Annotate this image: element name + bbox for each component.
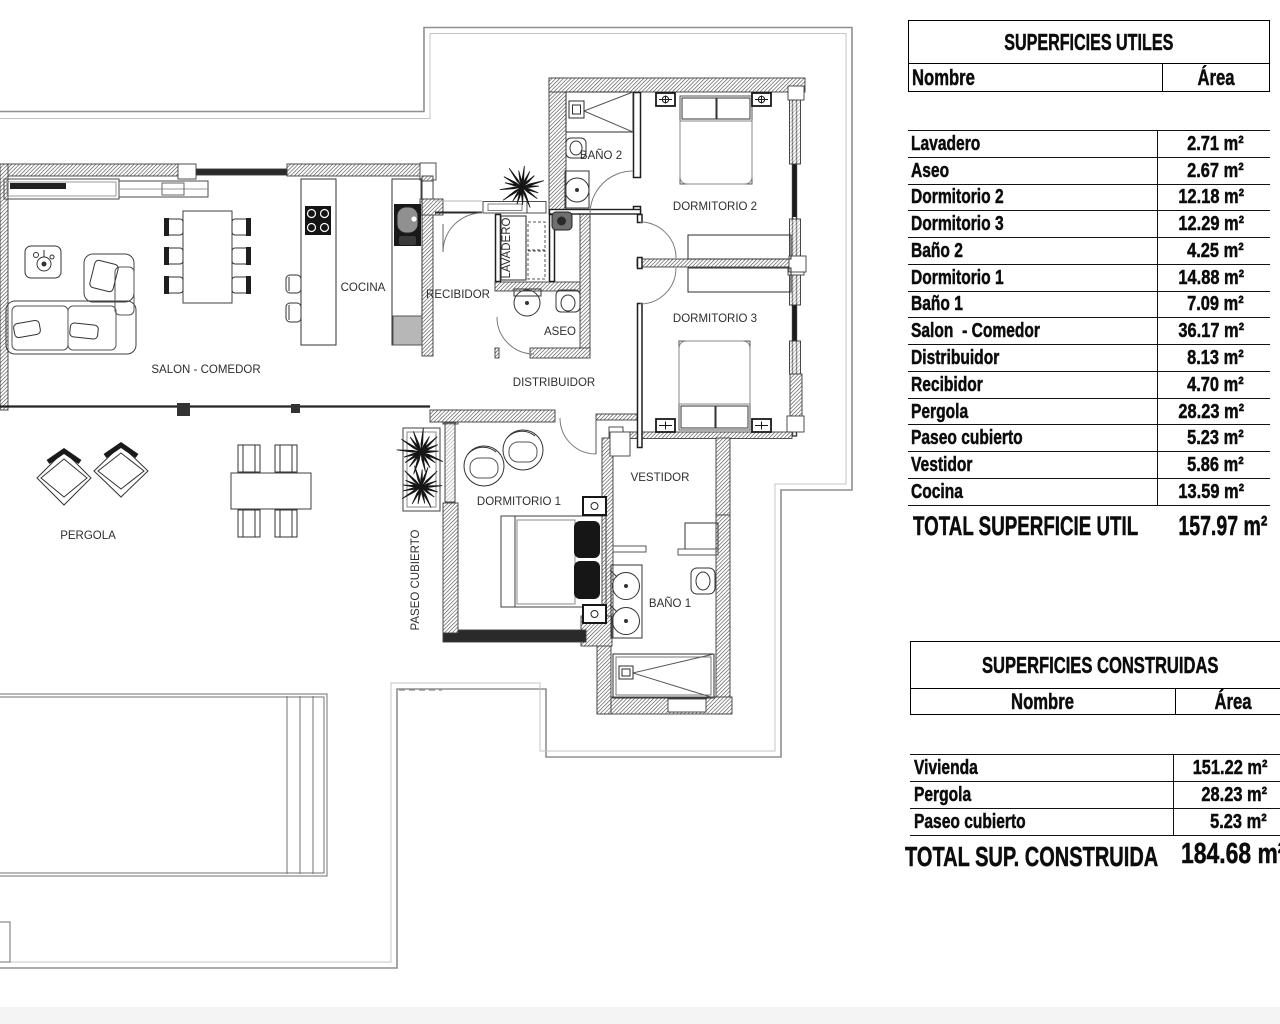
svg-text:DISTRIBUIDOR: DISTRIBUIDOR bbox=[513, 377, 595, 389]
svg-text:LAVADERO: LAVADERO bbox=[501, 217, 513, 278]
svg-text:BAÑO 1: BAÑO 1 bbox=[649, 597, 691, 610]
svg-text:ASEO: ASEO bbox=[544, 326, 576, 338]
svg-text:VESTIDOR: VESTIDOR bbox=[631, 472, 690, 484]
svg-text:SALON - COMEDOR: SALON - COMEDOR bbox=[151, 364, 260, 376]
svg-text:BAÑO 2: BAÑO 2 bbox=[580, 149, 622, 162]
svg-text:DORMITORIO 3: DORMITORIO 3 bbox=[673, 313, 757, 325]
svg-text:RECIBIDOR: RECIBIDOR bbox=[426, 289, 490, 301]
svg-text:PASEO CUBIERTO: PASEO CUBIERTO bbox=[410, 529, 422, 630]
svg-text:DORMITORIO 1: DORMITORIO 1 bbox=[477, 496, 561, 508]
svg-text:COCINA: COCINA bbox=[341, 282, 386, 294]
svg-text:DORMITORIO 2: DORMITORIO 2 bbox=[673, 201, 757, 213]
svg-text:PERGOLA: PERGOLA bbox=[60, 530, 116, 542]
